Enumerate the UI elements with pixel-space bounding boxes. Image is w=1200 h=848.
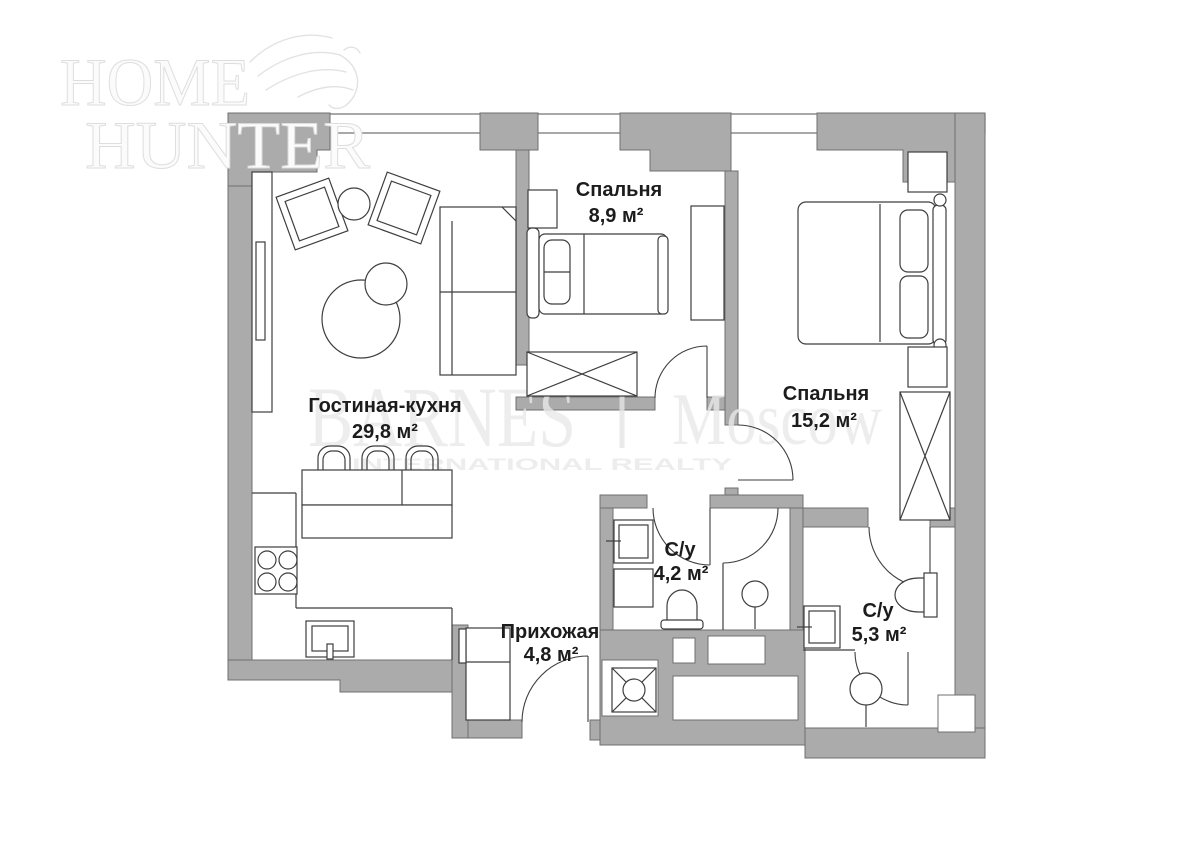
wall-bathroom1-top-a: [600, 495, 647, 508]
sink-tap: [327, 644, 333, 659]
kitchen-island: [302, 470, 452, 538]
wall-top-block-a: [480, 113, 538, 150]
floor-plan-image: HOME HUNTER BARNES Moscow INTERNATIONAL …: [0, 0, 1200, 848]
headboard: [933, 205, 946, 345]
floor-plan-svg: HOME HUNTER BARNES Moscow INTERNATIONAL …: [0, 0, 1200, 848]
room-area: 4,2 м²: [654, 563, 709, 585]
room-label: Гостиная-кухня: [308, 395, 461, 417]
service-niche-mid: [708, 636, 765, 664]
pillow: [900, 276, 928, 338]
headboard: [527, 228, 539, 318]
room-label: Спальня: [576, 179, 662, 201]
washing-machine: [612, 668, 656, 712]
pillow: [900, 210, 928, 272]
wardrobe-2: [900, 392, 950, 520]
side-table: [338, 188, 370, 220]
headboard-finial: [934, 194, 946, 206]
sofa: [440, 207, 516, 375]
nightstand: [528, 190, 557, 228]
wall-entrance-left: [468, 720, 522, 738]
wall-left-outer: [228, 186, 252, 660]
wall-bathroom1-top-b: [710, 495, 803, 508]
watermark-hunter: HUNTER: [85, 107, 371, 183]
room-area: 4,8 м²: [524, 644, 579, 666]
radiator: [256, 242, 265, 340]
room-label: С/у: [862, 600, 894, 622]
nightstand-bottom: [908, 347, 947, 387]
single-bed: [527, 228, 668, 318]
nightstand-top: [908, 152, 947, 192]
room-area: 15,2 м²: [791, 410, 857, 432]
bathroom2-sink: [797, 606, 840, 648]
wall-bathroom2-top-a: [803, 508, 868, 527]
footboard: [658, 236, 668, 314]
room-label: С/у: [664, 539, 696, 561]
room-area: 5,3 м²: [852, 624, 907, 646]
stove: [255, 547, 297, 594]
desk: [691, 206, 724, 320]
wall-right-outer: [955, 113, 985, 758]
room-label: Прихожая: [501, 621, 600, 643]
wall-bathroom1-left: [600, 495, 613, 630]
room-label: Спальня: [783, 383, 869, 405]
room-area: 29,8 м²: [352, 421, 418, 443]
wall-shower-bathroom2: [790, 508, 803, 630]
coffee-table-small: [365, 263, 407, 305]
service-niche-small: [673, 638, 695, 663]
room-area: 8,9 м²: [589, 205, 644, 227]
wardrobe-1: [527, 352, 637, 396]
kitchen-sink: [306, 621, 354, 659]
double-bed: [798, 194, 946, 351]
shaft-square: [938, 695, 975, 732]
service-niche-large: [673, 676, 798, 720]
bathroom1-cabinet: [614, 569, 653, 607]
